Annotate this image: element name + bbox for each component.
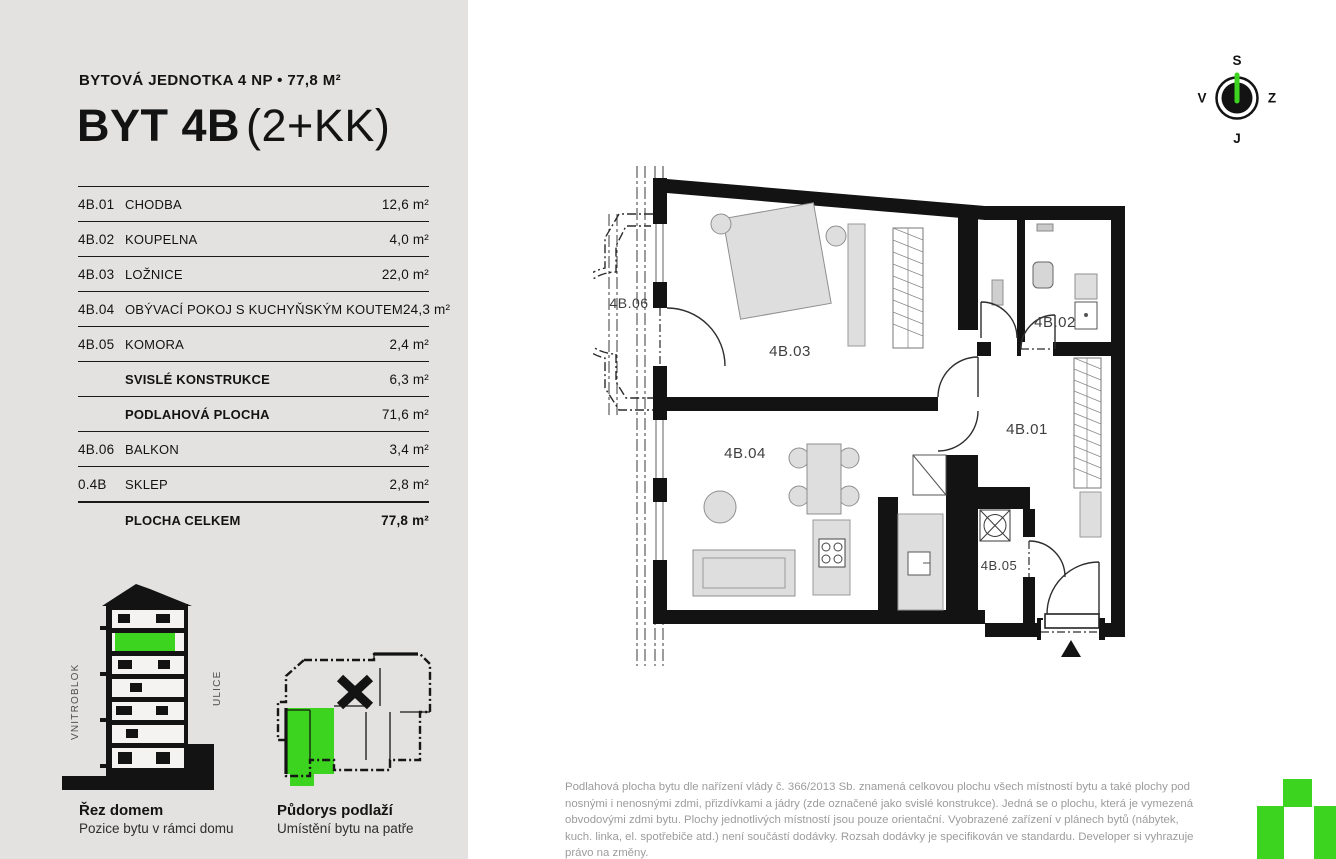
room-label-4b02: 4B.02 xyxy=(1034,314,1076,331)
table-row: 4B.05 KOMORA 2,4 m² xyxy=(78,326,429,361)
room-name: CHODBA xyxy=(125,197,182,212)
footer-note: Podlahová plocha bytu dle nařízení vlády… xyxy=(565,779,1197,859)
compass-north: S xyxy=(1232,53,1241,68)
locator-caption: Umístění bytu na patře xyxy=(277,821,414,836)
compass-west: V xyxy=(1197,91,1206,106)
table-row: PLOCHA CELKEM 77,8 m² xyxy=(78,501,429,537)
washer xyxy=(980,510,1010,541)
room-label-4b03: 4B.03 xyxy=(769,343,811,360)
room-name: PLOCHA CELKEM xyxy=(125,513,241,528)
bedroom-furniture xyxy=(711,203,923,348)
unit-title-bold: BYT 4B xyxy=(77,100,240,151)
table-row: 4B.06 BALKON 3,4 m² xyxy=(78,431,429,466)
room-name: LOŽNICE xyxy=(125,267,183,282)
room-name: SVISLÉ KONSTRUKCE xyxy=(125,372,270,387)
section-title: Řez domem xyxy=(79,802,163,819)
table-row: 4B.03 LOŽNICE 22,0 m² xyxy=(78,256,429,291)
room-area: 71,6 m² xyxy=(382,407,429,422)
logo-block-mid xyxy=(1283,779,1312,807)
locator-title: Půdorys podlaží xyxy=(277,802,393,819)
floorplan-sheet: BYTOVÁ JEDNOTKA 4 NP • 77,8 M² BYT 4B(2+… xyxy=(0,0,1336,859)
room-code: 4B.04 xyxy=(78,302,125,317)
table-row: 4B.01 CHODBA 12,6 m² xyxy=(78,186,429,221)
brand-logo xyxy=(1257,779,1336,859)
room-label-4b01: 4B.01 xyxy=(1006,421,1048,438)
table-row: 0.4B SKLEP 2,8 m² xyxy=(78,466,429,501)
room-code: 0.4B xyxy=(78,477,125,492)
unit-title: BYT 4B(2+KK) xyxy=(77,100,390,152)
room-area: 12,6 m² xyxy=(382,197,429,212)
room-area: 2,4 m² xyxy=(390,337,429,352)
area-table: 4B.01 CHODBA 12,6 m² 4B.02 KOUPELNA 4,0 … xyxy=(78,186,429,537)
compass: S Z J V xyxy=(1192,48,1282,148)
unit-subtitle: BYTOVÁ JEDNOTKA 4 NP • 77,8 M² xyxy=(79,72,341,89)
room-area: 3,4 m² xyxy=(390,442,429,457)
hallway-wardrobe xyxy=(1074,358,1101,537)
locator-figure xyxy=(270,648,440,798)
table-row: 4B.04 OBÝVACÍ POKOJ S KUCHYŇSKÝM KOUTEM … xyxy=(78,291,429,326)
room-code: 4B.01 xyxy=(78,197,125,212)
table-row: SVISLÉ KONSTRUKCE 6,3 m² xyxy=(78,361,429,396)
room-name: SKLEP xyxy=(125,477,168,492)
logo-block-right xyxy=(1314,806,1336,859)
room-name: BALKON xyxy=(125,442,179,457)
room-area: 77,8 m² xyxy=(381,513,429,528)
table-row: 4B.02 KOUPELNA 4,0 m² xyxy=(78,221,429,256)
table-row: PODLAHOVÁ PLOCHA 71,6 m² xyxy=(78,396,429,431)
entrance-arrow xyxy=(1061,640,1081,657)
room-label-4b04: 4B.04 xyxy=(724,445,766,462)
room-name: KOUPELNA xyxy=(125,232,197,247)
balcony-outline xyxy=(593,214,653,410)
section-caption: Pozice bytu v rámci domu xyxy=(79,821,234,836)
section-left-label: VNITROBLOK xyxy=(70,664,81,740)
room-code: 4B.05 xyxy=(78,337,125,352)
room-area: 4,0 m² xyxy=(390,232,429,247)
section-figure: VNITROBLOK ULICE xyxy=(60,580,232,794)
living-furniture xyxy=(693,444,946,610)
section-unit-highlight xyxy=(115,633,175,651)
room-code: 4B.02 xyxy=(78,232,125,247)
room-area: 22,0 m² xyxy=(382,267,429,282)
room-area: 2,8 m² xyxy=(390,477,429,492)
section-right-label: ULICE xyxy=(212,671,223,706)
room-code: 4B.03 xyxy=(78,267,125,282)
room-label-4b06: 4B.06 xyxy=(609,295,648,311)
room-name: PODLAHOVÁ PLOCHA xyxy=(125,407,270,422)
room-name: KOMORA xyxy=(125,337,184,352)
entrance-door-leaf xyxy=(1045,614,1099,628)
compass-south: J xyxy=(1233,131,1241,146)
room-name: OBÝVACÍ POKOJ S KUCHYŇSKÝM KOUTEM xyxy=(125,302,403,317)
room-area: 6,3 m² xyxy=(390,372,429,387)
compass-east: Z xyxy=(1268,91,1276,106)
floor-plan: 4B.01 4B.02 4B.03 4B.04 4B.05 4B.06 xyxy=(593,162,1141,670)
unit-title-light: (2+KK) xyxy=(246,100,390,151)
room-code: 4B.06 xyxy=(78,442,125,457)
room-area: 24,3 m² xyxy=(403,302,450,317)
room-label-4b05: 4B.05 xyxy=(981,558,1017,573)
logo-block-left xyxy=(1257,806,1284,859)
